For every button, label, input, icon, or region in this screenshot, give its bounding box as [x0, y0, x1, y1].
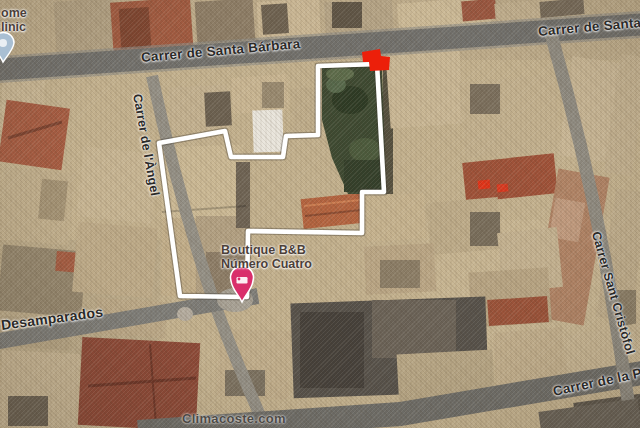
poi-label-boutique-bb-line1: Boutique B&B [221, 244, 312, 258]
poi-label-boutique-bb-line2: Número Cuatro [221, 258, 312, 272]
map-canvas[interactable]: Carrer de Santa Bárbara Carrer de Santa … [0, 0, 640, 428]
clinic-pin[interactable] [0, 33, 14, 63]
map-overlays [0, 0, 640, 428]
watermark: Climacoste.com [182, 411, 286, 426]
clinic-pin-body[interactable] [0, 33, 14, 63]
poi-label-clinic-line1: ome [1, 7, 27, 21]
poi-label-boutique-bb[interactable]: Boutique B&B Número Cuatro [221, 244, 312, 271]
poi-label-clinic-line2: linic [1, 21, 27, 35]
poi-label-clinic[interactable]: ome linic [1, 7, 27, 34]
bed-icon-pillow [238, 278, 241, 281]
